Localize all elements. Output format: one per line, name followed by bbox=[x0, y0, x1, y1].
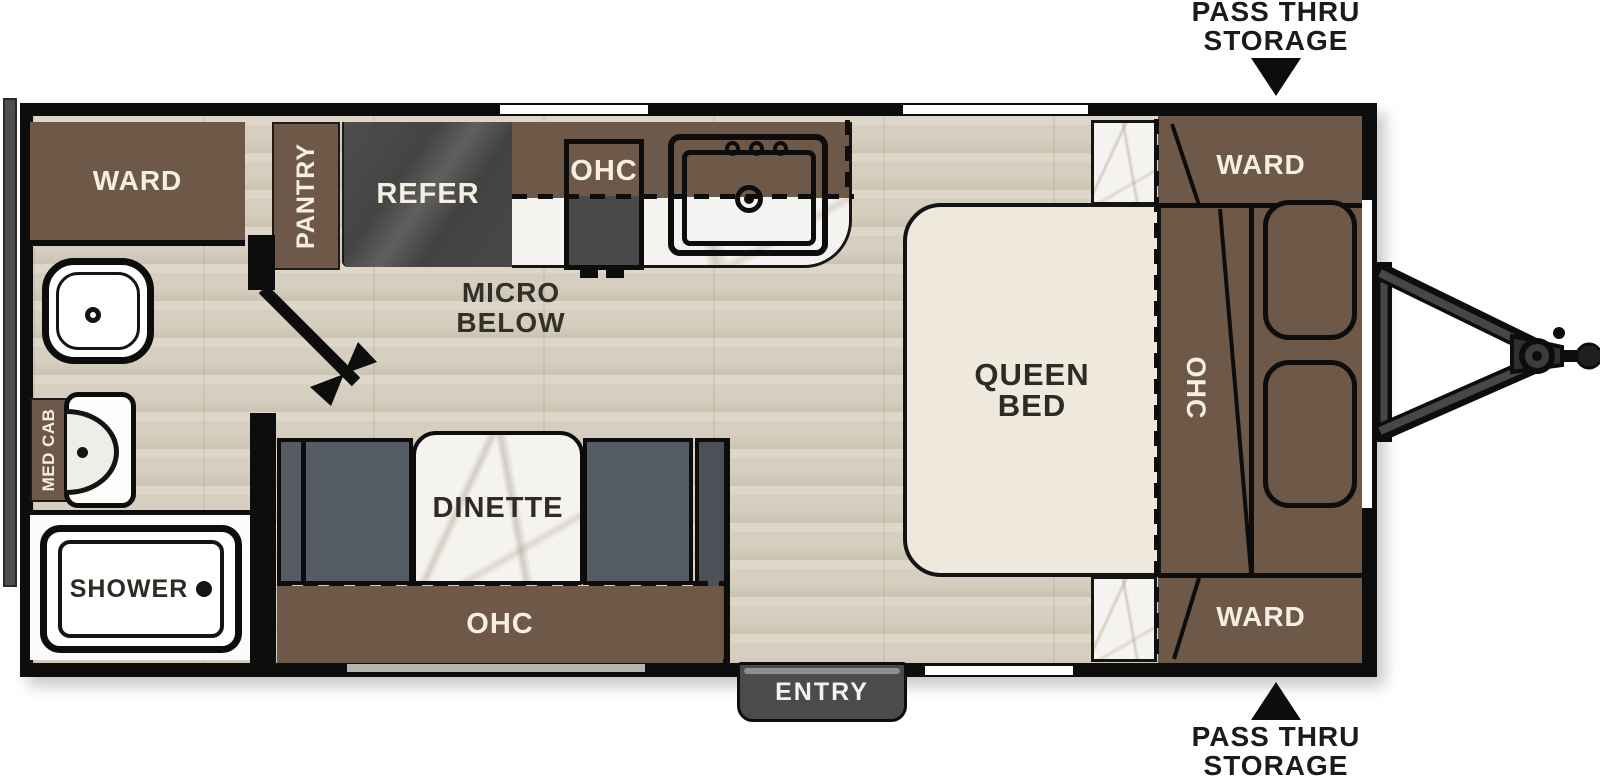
dinette-ohc-label: OHC bbox=[466, 608, 533, 641]
micro-below-label: MICRO BELOW bbox=[440, 278, 582, 338]
entry-label: ENTRY bbox=[775, 678, 869, 707]
pass-thru-label-bottom: PASS THRU STORAGE bbox=[1156, 722, 1396, 780]
hitch-ball bbox=[1577, 344, 1600, 368]
queen-bed: QUEEN BED bbox=[903, 203, 1161, 577]
hitch-bar-upper-fill bbox=[1380, 273, 1540, 351]
cabinet-foot-right bbox=[606, 266, 624, 278]
cabinet-foot-left bbox=[580, 266, 598, 278]
faucet-hole-2 bbox=[749, 141, 764, 156]
faucet-hole-1 bbox=[725, 141, 740, 156]
counter-dash-line bbox=[512, 194, 854, 199]
dinette-table-label: DINETTE bbox=[432, 492, 563, 525]
pass-thru-top-line1: PASS THRU bbox=[1156, 0, 1396, 26]
floorplan-canvas: PASS THRU STORAGE WARD MED CAB SHOWER bbox=[0, 0, 1600, 782]
front-wardrobe-bottom-edge bbox=[1158, 573, 1362, 578]
refrigerator: REFER bbox=[342, 122, 512, 267]
dinette-end-trim bbox=[724, 438, 730, 663]
front-wardrobe-bottom-label: WARD bbox=[1216, 601, 1306, 633]
kitchen-ohc-label-wrap: OHC bbox=[559, 154, 649, 188]
pass-thru-label-top: PASS THRU STORAGE bbox=[1156, 0, 1396, 55]
dinette-bench-left bbox=[277, 438, 413, 585]
dinette-table: DINETTE bbox=[412, 431, 584, 585]
med-cab-label: MED CAB bbox=[39, 409, 59, 492]
hitch-ball-stub bbox=[1594, 350, 1600, 362]
kitchen-ohc-label: OHC bbox=[570, 155, 637, 188]
dinette-ohc: OHC bbox=[277, 586, 723, 663]
rear-wardrobe: WARD bbox=[30, 122, 245, 240]
pass-thru-top-line2: STORAGE bbox=[1156, 26, 1396, 55]
window-bottom bbox=[925, 666, 1073, 675]
window-front bbox=[1362, 200, 1372, 508]
hitch-bar-lower-fill bbox=[1380, 361, 1540, 431]
rear-wardrobe-edge bbox=[30, 240, 245, 246]
front-wardrobe-top: WARD bbox=[1160, 148, 1362, 182]
shower-drain-dot bbox=[201, 585, 207, 593]
pass-thru-bottom-line1: PASS THRU bbox=[1156, 722, 1396, 751]
hitch-jack-knob bbox=[1553, 327, 1565, 339]
nightstand-top bbox=[1091, 120, 1157, 205]
bath-sink-drain-icon bbox=[77, 447, 88, 458]
window-top-right bbox=[903, 105, 1088, 114]
pass-thru-bottom-line2: STORAGE bbox=[1156, 751, 1396, 780]
hitch-jack-hub bbox=[1532, 351, 1542, 361]
dinette-bench-right bbox=[583, 438, 693, 585]
headboard-panel-line bbox=[1249, 207, 1254, 575]
pantry-label-wrap: PANTRY bbox=[293, 122, 319, 270]
awning-rail bbox=[347, 664, 645, 672]
hitch-tongue-bar bbox=[1560, 350, 1582, 362]
shower-pan-inner: SHOWER bbox=[58, 540, 224, 638]
hitch-bar-lower bbox=[1377, 360, 1545, 434]
entry-step-tread bbox=[744, 668, 900, 674]
hitch-coupler bbox=[1512, 336, 1562, 372]
front-wardrobe-bottom: WARD bbox=[1160, 600, 1362, 634]
dinette-bench-left-divider bbox=[301, 442, 306, 581]
counter-dash-line-vertical bbox=[845, 120, 850, 196]
headboard-cushion-top bbox=[1263, 200, 1357, 340]
hitch-jack-wheel bbox=[1522, 341, 1552, 371]
front-wardrobe-top-label: WARD bbox=[1216, 149, 1306, 181]
toilet bbox=[42, 258, 154, 364]
headboard-cushion-bottom bbox=[1263, 360, 1357, 508]
rear-wardrobe-label: WARD bbox=[93, 165, 183, 197]
bed-ohc-label: OHC bbox=[1181, 357, 1212, 420]
bedroom-dash-line bbox=[1154, 119, 1159, 663]
rear-bumper bbox=[3, 98, 17, 587]
shower-drain-icon bbox=[196, 581, 212, 597]
hitch-bar-upper bbox=[1377, 270, 1545, 352]
med-cab-label-wrap: MED CAB bbox=[40, 395, 58, 505]
faucet-hole-3 bbox=[773, 141, 788, 156]
bath-sink-basin bbox=[67, 409, 119, 495]
bath-sink-vanity bbox=[64, 392, 136, 508]
arrow-down-icon bbox=[1251, 58, 1301, 96]
nightstand-bottom bbox=[1091, 576, 1157, 662]
toilet-flush-icon bbox=[85, 307, 101, 323]
arrow-up-icon bbox=[1251, 682, 1301, 720]
refrigerator-label: REFER bbox=[376, 178, 479, 211]
queen-bed-line2: BED bbox=[998, 390, 1066, 421]
window-top-left bbox=[500, 105, 648, 114]
queen-bed-line1: QUEEN bbox=[974, 359, 1089, 390]
bed-ohc-label-wrap: OHC bbox=[1184, 348, 1208, 428]
pantry-label: PANTRY bbox=[292, 143, 321, 249]
shower-area: SHOWER bbox=[30, 510, 250, 660]
shower-pan: SHOWER bbox=[40, 525, 242, 653]
entry-step: ENTRY bbox=[737, 662, 907, 722]
micro-below-line2: BELOW bbox=[440, 308, 582, 338]
shower-label: SHOWER bbox=[70, 575, 189, 604]
micro-below-line1: MICRO bbox=[440, 278, 582, 308]
